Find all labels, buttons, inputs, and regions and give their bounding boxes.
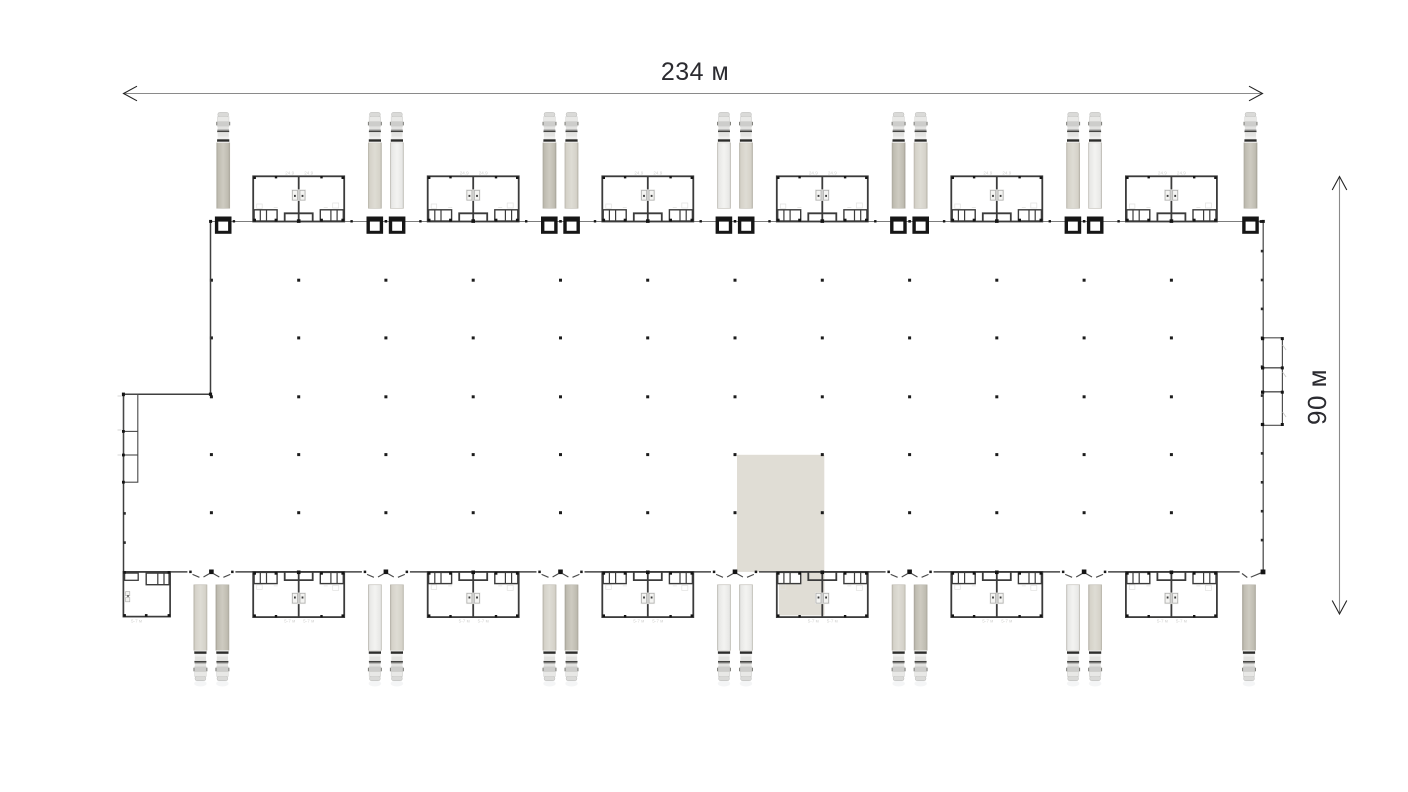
svg-text:24.9: 24.9: [828, 171, 837, 176]
svg-text:5-7 м: 5-7 м: [284, 619, 295, 624]
svg-text:90 м: 90 м: [1302, 369, 1332, 425]
svg-text:24.9: 24.9: [1002, 171, 1011, 176]
svg-text:24.9: 24.9: [479, 171, 488, 176]
svg-text:5-7 м: 5-7 м: [131, 619, 142, 624]
svg-text:5-7 м: 5-7 м: [633, 619, 644, 624]
svg-text:5-7 м: 5-7 м: [808, 619, 819, 624]
svg-text:24.9: 24.9: [304, 171, 313, 176]
svg-text:5-7 м: 5-7 м: [652, 619, 663, 624]
svg-text:24.9: 24.9: [1158, 171, 1167, 176]
svg-text:5-7 м: 5-7 м: [1176, 619, 1187, 624]
svg-text:24.9: 24.9: [285, 171, 294, 176]
svg-text:24.9: 24.9: [1177, 171, 1186, 176]
svg-text:24.9: 24.9: [653, 171, 662, 176]
svg-text:5-7 м: 5-7 м: [459, 619, 470, 624]
svg-text:5-7 м: 5-7 м: [478, 619, 489, 624]
svg-text:5-7 м: 5-7 м: [1001, 619, 1012, 624]
svg-text:5-7 м: 5-7 м: [1157, 619, 1168, 624]
svg-text:5-7 м: 5-7 м: [303, 619, 314, 624]
svg-text:5-7 м: 5-7 м: [827, 619, 838, 624]
svg-text:5-7 м: 5-7 м: [982, 619, 993, 624]
svg-text:24.9: 24.9: [809, 171, 818, 176]
svg-text:24.9: 24.9: [983, 171, 992, 176]
svg-text:234 м: 234 м: [661, 58, 729, 86]
svg-text:24.9: 24.9: [460, 171, 469, 176]
svg-text:24.9: 24.9: [634, 171, 643, 176]
